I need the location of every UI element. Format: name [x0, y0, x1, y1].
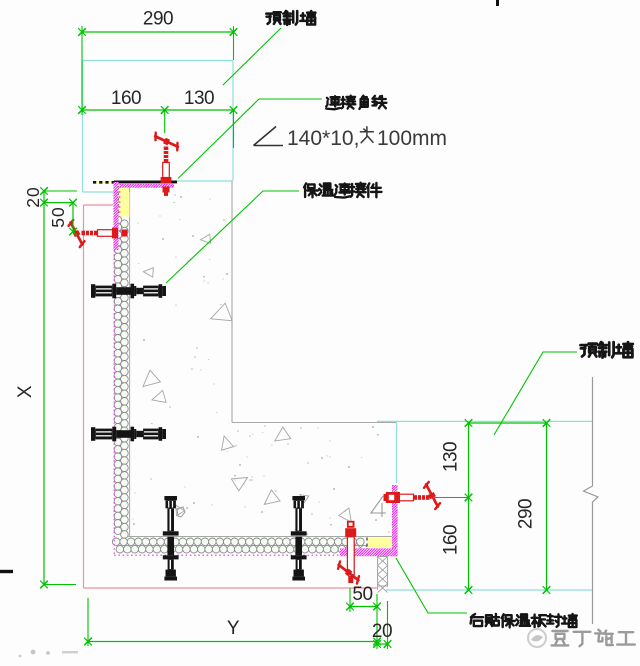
- svg-text:290: 290: [143, 9, 173, 30]
- svg-text:140*10,: 140*10,: [287, 127, 359, 150]
- svg-text:20: 20: [372, 621, 392, 642]
- svg-text:Y: Y: [227, 618, 240, 639]
- svg-text:160: 160: [111, 88, 141, 109]
- svg-text:160: 160: [441, 525, 462, 555]
- svg-text:130: 130: [184, 88, 214, 109]
- svg-text:X: X: [15, 385, 36, 398]
- svg-text:100mm: 100mm: [377, 127, 447, 150]
- svg-text:50: 50: [352, 584, 372, 605]
- svg-text:290: 290: [516, 499, 537, 529]
- svg-text:20: 20: [23, 186, 43, 207]
- svg-text:130: 130: [441, 442, 462, 472]
- svg-text:50: 50: [48, 206, 68, 227]
